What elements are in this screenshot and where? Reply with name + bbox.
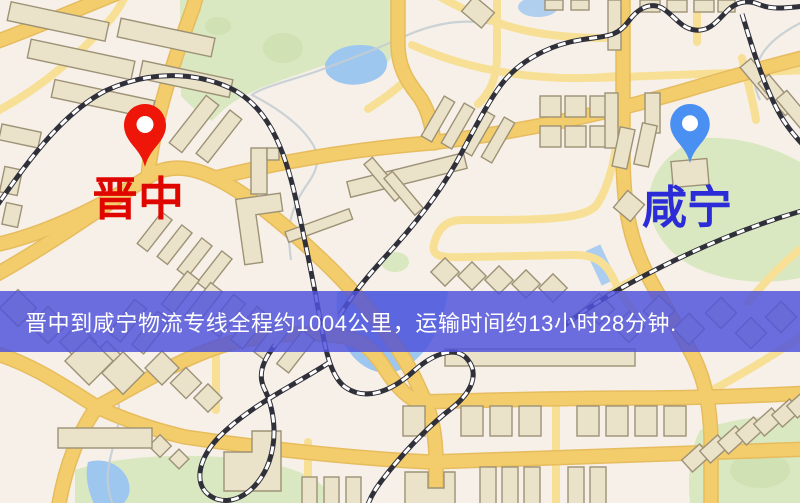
destination-city-label: 咸宁 [642,185,732,230]
route-info-text: 晋中到咸宁物流专线全程约1004公里，运输时间约13小时28分钟. [25,306,677,338]
map-canvas[interactable]: 晋中到咸宁物流专线全程约1004公里，运输时间约13小时28分钟. 晋中 咸宁 [0,0,800,503]
origin-city-label: 晋中 [92,176,184,222]
route-info-banner: 晋中到咸宁物流专线全程约1004公里，运输时间约13小时28分钟. [0,291,800,352]
map-image [0,0,800,503]
origin-pin-icon[interactable] [122,103,168,171]
destination-pin-icon[interactable] [668,103,712,167]
